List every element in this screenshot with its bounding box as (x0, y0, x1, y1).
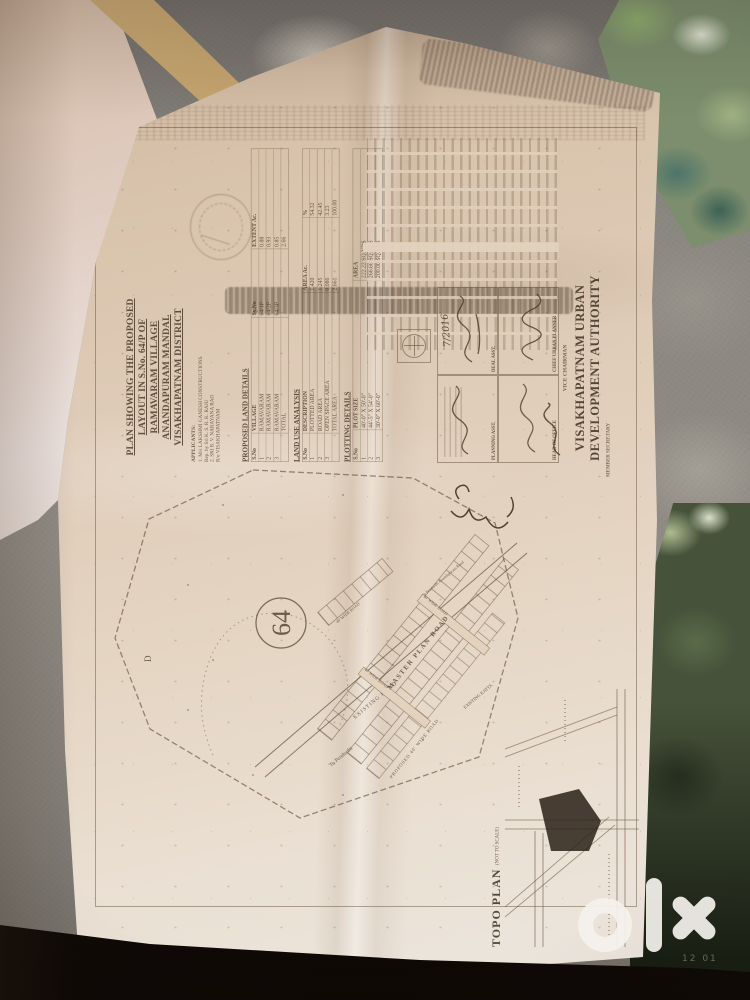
member-secretary-label: MEMBER SECRETARY (605, 423, 611, 477)
signature-scribble (499, 290, 551, 374)
table-cell: EXTENT Ac. (251, 149, 258, 249)
authority-name-line1: VISAKHAPATNAM URBAN (573, 273, 588, 463)
map-dots (187, 494, 424, 796)
wide-road-label: 40' WIDE ROAD (335, 601, 361, 624)
table-cell: TOTAL (281, 318, 288, 434)
table-cell: 1.245 (317, 218, 324, 293)
handwritten-pen-note (451, 485, 513, 528)
topo-scale-note: (NOT TO SCALE) (494, 827, 500, 865)
olx-o-icon (578, 898, 632, 952)
signature-box: CHIEF URBAN PLANNER (498, 287, 559, 375)
photo-scene: PLAN SHOWING THE PROPOSED LAYOUT IN S.No… (0, 0, 750, 1000)
table-cell: VILLAGE (251, 318, 258, 434)
table-cell: 0.086 (325, 218, 332, 293)
table-cell: RAMAVARAM (266, 318, 273, 434)
plan-title-line: ANANDAPURAM MANDAL (161, 292, 173, 462)
table-cell: AREA (353, 149, 360, 280)
plan-title-line: RAMAVARAM VILLAGE (149, 292, 161, 462)
table-cell: 0.88 (259, 149, 266, 249)
table-cell: 0.85 (274, 149, 281, 249)
proposed-road-label: PROPOSED 40' WIDE ROAD (389, 718, 440, 779)
plan-title-line: PLAN SHOWING THE PROPOSED (125, 292, 137, 462)
table-cell: 0.93 (266, 149, 273, 249)
signature-label: CHIEF URBAN PLANNER (552, 296, 558, 372)
table-cell: AREA Ac. (302, 218, 309, 293)
anandapuram-road-label: To Pendurthi Anandapuram Road (420, 559, 464, 597)
zone-letter: D (143, 655, 153, 662)
signature-label: DEAL ASST. (491, 296, 497, 372)
olx-watermark: 12 01 (578, 872, 728, 972)
olx-x-icon (668, 892, 720, 944)
table-cell: 1.420 (310, 218, 317, 293)
plan-title-line: VISAKHAPATNAM DISTRICT (173, 292, 185, 462)
round-stamp-seal (190, 194, 252, 260)
applicant-line: R/o VISAKHAPATNAM (215, 292, 221, 462)
topo-site-marker (539, 789, 601, 851)
plan-content: PLAN SHOWING THE PROPOSED LAYOUT IN S.No… (85, 105, 645, 955)
north-compass-icon (397, 329, 431, 363)
applicants-block: APPLICANTS: 1. M/s LAKSHMI GANESH CONSTR… (188, 292, 221, 462)
table-cell: 2.66 (281, 149, 288, 249)
table-cell: 3.23 (325, 149, 332, 218)
plot-block: 40' WIDE ROAD (318, 558, 396, 629)
olx-l-icon (646, 878, 662, 952)
table-cell: 100.00 (332, 149, 339, 218)
topo-title: TOPO PLAN (489, 869, 503, 947)
title-block: PLAN SHOWING THE PROPOSED LAYOUT IN S.No… (125, 292, 248, 462)
survey-map: To Pendurthi EXISTING ROAD To Pendurthi … (93, 445, 543, 915)
table-cell: % (302, 149, 309, 218)
parcel-boundary (115, 470, 518, 818)
table-cell: 54.32 (310, 149, 317, 218)
table-cell: RAMAVARAM (274, 318, 281, 434)
authority-name-line2: DEVELOPMENT AUTHORITY (588, 273, 603, 463)
parcel-number: 64 (267, 610, 296, 636)
plan-title-line: LAYOUT IN S.No. 64/P OF (137, 292, 149, 462)
conditions-column-gap (363, 243, 559, 252)
table-cell: 2.661 (332, 218, 339, 293)
table-cell: 42.45 (317, 149, 324, 218)
table-cell: RAMAVARAM (259, 318, 266, 434)
watermark-subtext: 12 01 (682, 954, 718, 964)
authority-block: VICE CHAIRMAN VISAKHAPATNAM URBAN DEVELO… (562, 273, 602, 463)
vice-chairman-label: VICE CHAIRMAN (562, 316, 568, 421)
